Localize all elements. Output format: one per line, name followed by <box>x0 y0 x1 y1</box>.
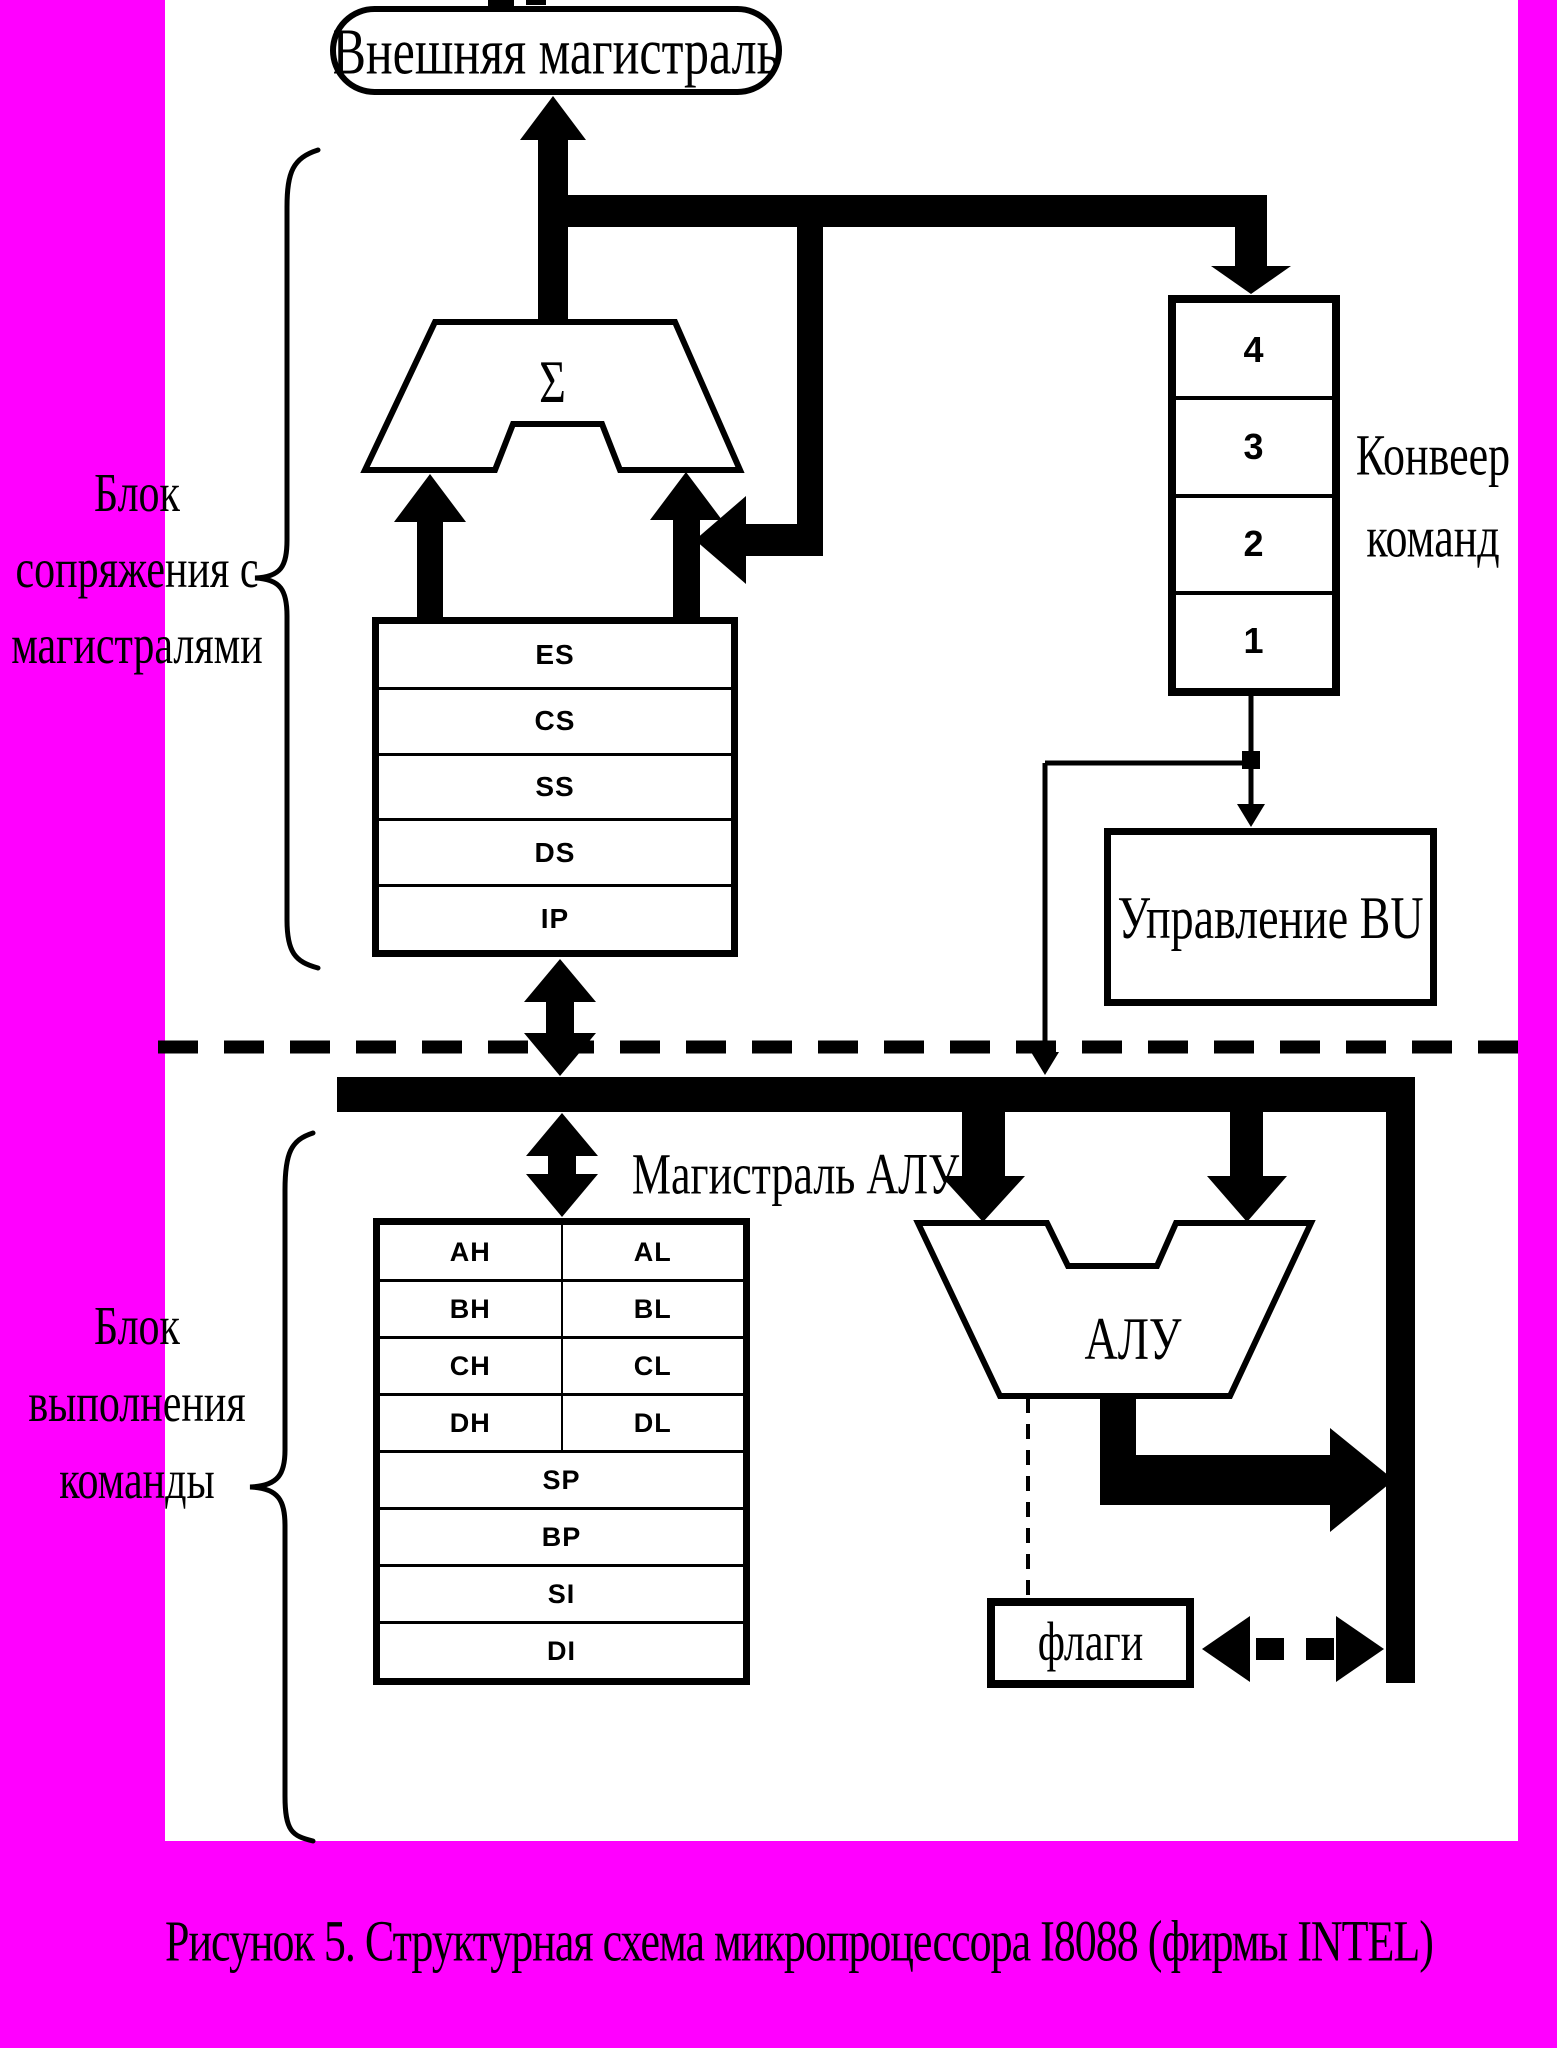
pipeline-cell-label: 4 <box>1243 329 1264 371</box>
table-row: DI <box>380 1624 743 1678</box>
alu-bus-bar <box>337 1077 1415 1112</box>
pipeline-cell-label: 2 <box>1243 523 1264 565</box>
bu-control-box: Управление BU <box>1104 828 1437 1006</box>
pipeline-caption-line: команд <box>1366 484 1499 592</box>
flags-link-right-arrowhead-icon <box>1336 1616 1384 1682</box>
register-cell: SP <box>380 1453 743 1507</box>
alu-output-arrowhead-icon <box>1330 1428 1394 1532</box>
operand-feed-shaft <box>797 227 823 540</box>
register-cell: SI <box>380 1567 743 1621</box>
ip-bus-up-arrowhead-icon <box>524 959 596 1002</box>
page: Внешняя магистраль Σ ES CS SS DS IP 4 3 … <box>0 0 1557 2048</box>
eu-label-line: команды <box>59 1449 214 1512</box>
pipeline-caption: Конвеер команд <box>1348 415 1518 579</box>
register-cell: DL <box>561 1396 744 1450</box>
bu-control-label: Управление BU <box>1117 882 1423 952</box>
eu-label-line: Блок <box>94 1295 180 1358</box>
table-row: CH CL <box>380 1339 743 1396</box>
operand-feed-arm <box>744 524 823 556</box>
segment-register-row: SS <box>379 756 731 822</box>
execution-register-table: AH AL BH BL CH CL DH DL SP BP SI DI <box>373 1218 750 1685</box>
eu-label: Блок выполнения команды <box>8 1288 266 1519</box>
register-cell: AL <box>561 1225 744 1279</box>
segment-register-row: IP <box>379 887 731 950</box>
bus-regfile-up-arrowhead-icon <box>526 1113 598 1156</box>
register-label: SS <box>535 771 574 803</box>
fetch-bus-bar <box>553 195 1267 227</box>
register-label: ES <box>535 639 574 671</box>
biu-label: Блок сопряжения с магистралями <box>8 456 266 684</box>
alu-label: АЛУ <box>1058 1308 1208 1368</box>
register-cell: DH <box>380 1396 561 1450</box>
pipeline-cell-label: 3 <box>1243 426 1264 468</box>
segment-register-box: ES CS SS DS IP <box>372 617 738 957</box>
alu-input-right-shaft <box>1230 1112 1263 1176</box>
pipeline-cell: 3 <box>1176 400 1332 497</box>
ip-bus-down-arrowhead-icon <box>524 1033 596 1076</box>
eu-label-line: выполнения <box>28 1372 245 1435</box>
register-cell: DI <box>380 1624 743 1678</box>
register-cell: CH <box>380 1339 561 1393</box>
flags-label: флаги <box>1038 1611 1143 1674</box>
pipeline-feed-shaft <box>1235 227 1267 269</box>
alu-output-run <box>1100 1455 1332 1505</box>
table-row: AH AL <box>380 1225 743 1282</box>
register-label: CS <box>535 705 576 737</box>
register-cell: CL <box>561 1339 744 1393</box>
pipeline-cell-label: 1 <box>1243 620 1264 662</box>
adder-right-input-arrowhead-icon <box>650 472 722 520</box>
alu-bus-right-riser <box>1386 1112 1415 1683</box>
register-cell: BL <box>561 1282 744 1336</box>
flags-link-left-arrowhead-icon <box>1202 1616 1250 1682</box>
segment-register-row: CS <box>379 690 731 756</box>
bus-regfile-down-arrowhead-icon <box>526 1174 598 1217</box>
alu-input-left-shaft <box>962 1112 1005 1176</box>
pipeline-cell: 1 <box>1176 595 1332 688</box>
register-label: IP <box>541 903 569 935</box>
bu-feed-arrowhead-icon <box>1237 804 1265 827</box>
biu-label-line: сопряжения с <box>16 538 259 601</box>
adder-right-input-shaft <box>673 516 700 617</box>
figure-caption: Рисунок 5. Структурная схема микропроцес… <box>165 1916 1430 1967</box>
adder-left-input-arrowhead-icon <box>394 474 466 522</box>
pipeline-cell: 2 <box>1176 498 1332 595</box>
table-row: BP <box>380 1510 743 1567</box>
bus-up-arrowhead-icon <box>520 96 586 140</box>
pipeline-cell: 4 <box>1176 303 1332 400</box>
scan-artifact-mark <box>526 0 546 5</box>
alu-input-right-arrowhead-icon <box>1207 1176 1287 1222</box>
alu-bus-label: Магистраль АЛУ <box>628 1148 963 1200</box>
table-row: DH DL <box>380 1396 743 1453</box>
adder-sigma-label: Σ <box>500 350 605 412</box>
flags-box: флаги <box>987 1598 1194 1688</box>
register-cell: BP <box>380 1510 743 1564</box>
external-bus-label: Внешняя магистраль <box>333 12 780 89</box>
register-cell: AH <box>380 1225 561 1279</box>
pipeline-feed-arrowhead-icon <box>1211 266 1291 294</box>
register-cell: BH <box>380 1282 561 1336</box>
external-bus-box: Внешняя магистраль <box>330 6 782 95</box>
table-row: SP <box>380 1453 743 1510</box>
segment-register-row: DS <box>379 821 731 887</box>
biu-label-line: Блок <box>94 462 180 525</box>
instruction-pipeline-box: 4 3 2 1 <box>1168 295 1340 696</box>
biu-label-line: магистралями <box>11 614 263 677</box>
bu-bus-arrowhead-icon <box>1031 1052 1059 1075</box>
segment-register-row: ES <box>379 624 731 690</box>
table-row: SI <box>380 1567 743 1624</box>
table-row: BH BL <box>380 1282 743 1339</box>
register-label: DS <box>535 837 576 869</box>
adder-left-input-shaft <box>417 516 443 617</box>
